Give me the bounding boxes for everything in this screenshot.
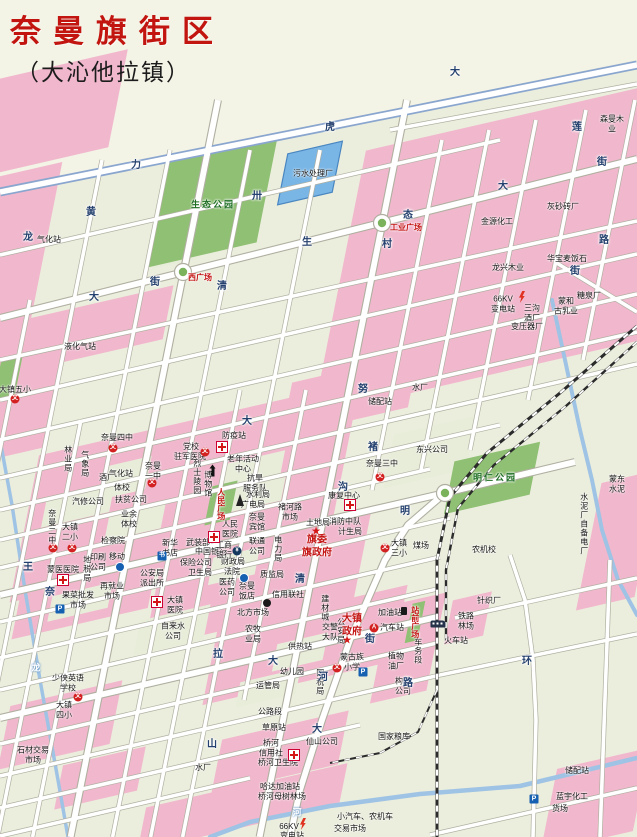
map-label: 草原站	[262, 723, 286, 733]
map-label: 酒厂	[99, 473, 115, 483]
map-label: 汽车站	[380, 623, 404, 633]
cross-icon	[344, 499, 356, 511]
school-icon	[68, 544, 77, 553]
map-label: 力	[131, 160, 141, 172]
map-label: 再就业 市场	[100, 581, 124, 600]
lightning-icon	[519, 291, 525, 303]
map-label: 大镇五小	[0, 385, 31, 395]
map-label: 党校	[183, 442, 199, 452]
map-label: 站前广场	[410, 606, 420, 638]
school-icon	[333, 664, 342, 673]
map-label: 储配站	[368, 397, 392, 407]
map-label: 建材城	[320, 595, 330, 622]
map-label: 仙山公司	[306, 737, 338, 747]
map-label: 奈曼 饭店	[239, 581, 255, 600]
map-label: 交易市场	[334, 824, 366, 834]
map-label: 奈曼二中	[47, 509, 57, 545]
map-label: 公路段	[258, 707, 282, 717]
map-label: 电力局	[273, 536, 283, 563]
map-label: 消防中队	[329, 517, 361, 527]
school-icon	[109, 444, 118, 453]
map-label: 灰砂砖厂	[547, 202, 579, 212]
map-label: 防疫站	[222, 431, 246, 441]
map-label: 清	[217, 281, 227, 293]
map-label: 北方市场	[237, 608, 269, 618]
map-label: 河	[292, 808, 301, 819]
map-label: 车务段	[413, 638, 423, 665]
parking-icon	[359, 668, 368, 677]
map-label: 明	[400, 506, 410, 518]
map-label: 农机校	[472, 545, 496, 555]
map-label: 森曼木业	[600, 114, 625, 133]
map-label: 东兴公司	[416, 445, 448, 455]
street-map: 污水处理厂生态公园明仁公园工业广场西广场气化站液化气站大镇五小金源化工灰砂砖厂森…	[0, 0, 637, 837]
map-label: 植物 油厂	[388, 651, 404, 670]
map-label: 果菜批发 市场	[62, 590, 94, 609]
map-label: 大	[242, 416, 252, 428]
school-icon	[201, 448, 210, 457]
cross-icon	[57, 574, 69, 586]
map-label: 体校	[114, 483, 130, 493]
map-label: 人民广场	[216, 488, 226, 520]
map-label: 汽修公司	[72, 497, 104, 507]
map-label: 卫生局	[188, 568, 212, 578]
cross-icon	[216, 441, 228, 453]
map-label: 村	[382, 239, 392, 251]
map-label: 质监局	[260, 570, 284, 580]
tower-icon	[236, 494, 244, 506]
map-label: 河	[318, 672, 328, 684]
map-label: 街	[597, 157, 607, 169]
map-label: 扶贫公司	[115, 495, 147, 505]
map-labels-layer: 污水处理厂生态公园明仁公园工业广场西广场气化站液化气站大镇五小金源化工灰砂砖厂森…	[0, 0, 637, 837]
parking-icon	[530, 795, 539, 804]
map-label: 广电局	[241, 500, 265, 510]
map-label: 印刷 公司	[90, 552, 106, 571]
map-label: 国家粮库	[378, 732, 410, 742]
map-label: 大	[498, 181, 508, 193]
map-label: 生态公园	[191, 200, 235, 211]
map-label: 大镇 医院	[167, 595, 183, 614]
map-label: 街	[570, 266, 580, 278]
map-label: 液化气站	[64, 342, 96, 352]
map-label: 努	[358, 384, 368, 396]
cross-icon	[151, 596, 163, 608]
star-icon	[342, 636, 352, 647]
map-label: 火车站	[444, 636, 468, 646]
map-label: 西广场	[188, 273, 212, 283]
map-label: 大镇 四小	[56, 700, 72, 719]
map-label: 货场	[552, 804, 568, 814]
map-label: 供热站	[288, 642, 312, 652]
map-label: 王	[23, 562, 33, 574]
map-label: 奈	[45, 587, 55, 599]
map-label: 储配站	[565, 766, 589, 776]
map-label: 莲	[572, 122, 582, 134]
map-label: 计生局	[338, 527, 362, 537]
map-label: 龙	[23, 232, 33, 244]
map-label: 移动	[109, 552, 125, 562]
map-label: 桥河母树林场	[258, 792, 306, 802]
busA-icon	[370, 624, 379, 633]
map-label: 法院	[224, 567, 240, 577]
map-label: 水厂	[195, 763, 211, 773]
map-label: 路	[403, 678, 413, 690]
parking-icon	[56, 605, 65, 614]
map-label: 医药 公司	[219, 577, 235, 596]
map-label: 少侠英语 学校	[52, 673, 84, 692]
dot-dark-icon	[263, 599, 271, 607]
pump-icon	[401, 607, 407, 615]
map-label: 人民 医院	[222, 519, 238, 538]
map-label: 水厂	[412, 383, 428, 393]
map-label: 生	[302, 237, 312, 249]
map-label: 环	[522, 656, 532, 668]
school-icon	[148, 479, 157, 488]
map-label: 金源化工	[481, 217, 513, 227]
map-label: 66KV 变电站	[491, 294, 515, 313]
map-label: 工业广场	[390, 223, 422, 233]
map-label: 大镇 三小	[391, 538, 407, 557]
school-icon	[381, 544, 390, 553]
school-icon	[11, 395, 20, 404]
map-label: 奈曼四中	[101, 433, 133, 443]
map-label: 奈曼三中	[366, 459, 398, 469]
map-label: 铁路 林场	[458, 611, 474, 630]
map-label: 幼儿园	[280, 667, 304, 677]
map-label: 信用联社	[272, 590, 304, 600]
dot-blue-icon	[115, 562, 125, 572]
map-label: 桥河 信用社	[259, 738, 283, 757]
monument-icon	[212, 468, 215, 477]
map-label: 三沟 酒厂	[524, 303, 540, 322]
school-icon	[74, 693, 83, 702]
bank-icon	[233, 547, 242, 556]
school-icon	[49, 544, 58, 553]
map-label: 蒙和 古乳业	[554, 296, 578, 315]
map-label: 褚河路 市场	[278, 502, 302, 521]
map-label: 街	[365, 634, 375, 646]
map-title-block: 奈曼旗街区 （大沁他拉镇）	[10, 6, 225, 87]
map-label: 褚	[368, 442, 378, 454]
map-label: 奈曼 宾馆	[249, 512, 265, 531]
map-label: 针织厂	[477, 596, 501, 606]
map-label: 大	[450, 67, 460, 79]
map-label: 大	[89, 292, 99, 304]
map-label: 烈士陵园	[192, 459, 202, 495]
map-label: 煤场	[413, 541, 429, 551]
cross-icon	[288, 749, 300, 761]
lightning-icon	[300, 818, 306, 830]
map-label: 街	[150, 277, 160, 289]
map-label: 联通 公司	[249, 536, 265, 555]
map-label: 小汽车、农机车	[337, 812, 393, 822]
book-icon	[158, 552, 167, 561]
map-label: 大	[312, 724, 322, 736]
map-label: 黄	[86, 207, 96, 219]
map-label: 石材交易 市场	[17, 745, 49, 764]
train-icon	[431, 621, 446, 628]
map-label: 虎	[325, 122, 335, 134]
map-label: 蓝宇化工	[556, 792, 588, 802]
map-label: 气化站	[37, 235, 61, 245]
map-label: 沟	[338, 482, 348, 494]
map-label: 龙	[31, 663, 40, 674]
map-label: 卅	[252, 191, 262, 203]
map-label: 农牧 业局	[245, 624, 261, 643]
map-label: 路	[599, 235, 609, 247]
map-label: 污水处理厂	[293, 169, 333, 179]
map-label: 态	[403, 210, 413, 222]
map-label: 旗委 旗政府	[302, 535, 332, 560]
star-icon	[311, 527, 321, 538]
map-label: 大	[268, 656, 278, 668]
map-label: 变电站	[280, 831, 304, 837]
map-label: 龙兴木业	[492, 263, 524, 273]
map-label: 林业局	[63, 446, 73, 473]
dot-blue-icon	[239, 573, 249, 583]
map-label: 水利局	[246, 490, 270, 500]
map-label: 自来水 公司	[161, 621, 185, 640]
map-label: 气象局	[80, 451, 90, 478]
page-title: 奈曼旗街区	[10, 6, 225, 51]
map-label: 检察院	[101, 536, 125, 546]
map-label: 变压器厂	[511, 322, 543, 332]
map-label: 工商 银行	[216, 540, 232, 559]
cross-icon	[208, 531, 220, 543]
map-label: 大镇 二小	[62, 522, 78, 541]
map-label: 公安局 派出所	[140, 568, 164, 587]
page-subtitle: （大沁他拉镇）	[16, 53, 225, 87]
map-label: 运管局	[256, 681, 280, 691]
map-label: 清	[295, 574, 305, 586]
map-label: 老年活动 中心	[227, 454, 259, 473]
map-label: 山	[207, 739, 217, 751]
map-label: 华宝麦饭石	[547, 254, 587, 264]
school-icon	[376, 473, 385, 482]
map-label: 蒙东水泥	[607, 474, 627, 493]
map-label: 拉	[213, 649, 223, 661]
map-label: 糖泉厂	[577, 291, 601, 301]
map-label: 加油站	[378, 608, 402, 618]
map-label: 明仁公园	[473, 473, 517, 484]
map-label: 业余 体校	[121, 509, 137, 528]
map-label: 水泥厂自备电厂	[579, 493, 589, 556]
map-label: 哈达加油站	[260, 782, 300, 792]
map-label: 保险公司	[180, 558, 212, 568]
